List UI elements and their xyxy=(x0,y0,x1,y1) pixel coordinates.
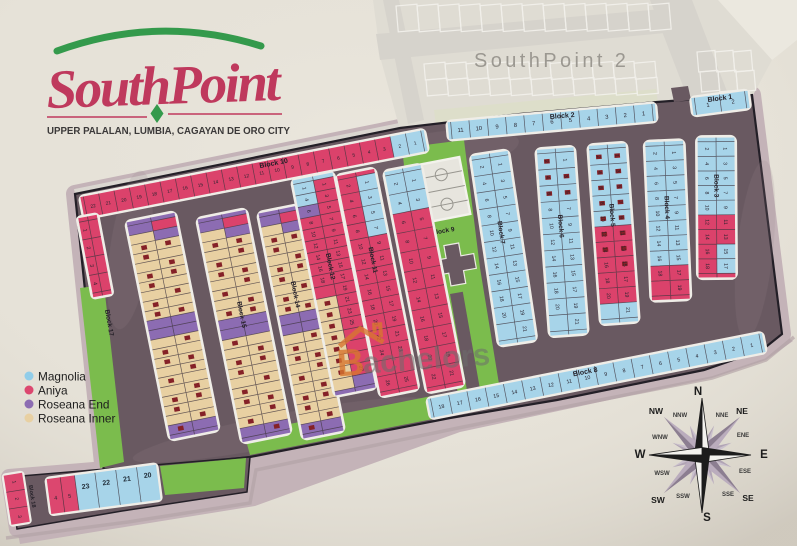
svg-text:17: 17 xyxy=(456,400,463,407)
svg-text:W: W xyxy=(635,449,646,461)
svg-text:2: 2 xyxy=(651,152,657,155)
svg-text:WNW: WNW xyxy=(652,435,668,441)
svg-text:SW: SW xyxy=(651,495,666,505)
svg-text:17: 17 xyxy=(622,276,628,282)
svg-text:4: 4 xyxy=(703,162,709,165)
svg-text:NE: NE xyxy=(736,406,748,416)
svg-text:SouthPoint 2: SouthPoint 2 xyxy=(474,50,629,72)
svg-text:16: 16 xyxy=(418,316,425,323)
svg-text:S: S xyxy=(703,512,711,524)
svg-text:12: 12 xyxy=(655,225,661,231)
svg-text:14: 14 xyxy=(550,255,556,261)
svg-text:13: 13 xyxy=(722,234,728,240)
svg-text:5: 5 xyxy=(671,181,677,184)
svg-text:15: 15 xyxy=(570,270,576,276)
svg-text:5: 5 xyxy=(615,185,621,188)
svg-text:6: 6 xyxy=(653,182,659,185)
svg-text:7: 7 xyxy=(722,191,728,194)
svg-text:10: 10 xyxy=(407,258,414,265)
svg-text:1: 1 xyxy=(721,147,727,150)
svg-text:Magnolia: Magnolia xyxy=(38,370,86,384)
svg-text:10: 10 xyxy=(599,216,605,222)
svg-text:3: 3 xyxy=(563,175,569,178)
svg-text:18: 18 xyxy=(552,288,558,294)
svg-text:8: 8 xyxy=(653,197,659,200)
svg-text:2: 2 xyxy=(595,155,601,158)
svg-text:10: 10 xyxy=(488,230,495,237)
svg-text:2: 2 xyxy=(543,160,549,163)
svg-text:NW: NW xyxy=(649,406,664,416)
svg-text:13: 13 xyxy=(620,245,626,251)
svg-text:E: E xyxy=(760,449,768,461)
svg-text:NNW: NNW xyxy=(673,413,688,419)
svg-text:12: 12 xyxy=(600,231,606,237)
svg-text:12: 12 xyxy=(549,239,555,245)
svg-text:15: 15 xyxy=(722,248,728,254)
svg-text:13: 13 xyxy=(568,254,574,260)
svg-text:17: 17 xyxy=(571,286,577,292)
svg-text:8: 8 xyxy=(547,208,553,211)
svg-text:18: 18 xyxy=(604,277,610,283)
svg-text:WSW: WSW xyxy=(654,471,670,477)
svg-text:11: 11 xyxy=(722,219,728,225)
svg-text:21: 21 xyxy=(573,319,579,325)
svg-text:16: 16 xyxy=(475,396,482,403)
svg-text:1: 1 xyxy=(613,154,619,157)
svg-text:9: 9 xyxy=(673,211,679,214)
svg-text:Aniya: Aniya xyxy=(38,384,68,398)
svg-text:11: 11 xyxy=(567,238,573,244)
svg-text:3: 3 xyxy=(614,169,620,172)
svg-text:1: 1 xyxy=(561,158,567,161)
svg-text:9: 9 xyxy=(618,216,624,219)
svg-text:ESE: ESE xyxy=(739,469,751,475)
svg-text:16: 16 xyxy=(603,262,609,268)
svg-text:20: 20 xyxy=(605,293,611,299)
svg-text:2: 2 xyxy=(703,148,709,151)
svg-text:Roseana Inner: Roseana Inner xyxy=(38,412,115,426)
svg-text:12: 12 xyxy=(704,219,710,225)
svg-text:10: 10 xyxy=(703,205,709,211)
svg-text:17: 17 xyxy=(675,270,681,276)
svg-text:7: 7 xyxy=(532,121,536,127)
svg-text:10: 10 xyxy=(548,223,554,229)
svg-text:11: 11 xyxy=(673,225,679,231)
svg-text:20: 20 xyxy=(500,312,507,319)
svg-text:6: 6 xyxy=(703,177,709,180)
svg-text:6: 6 xyxy=(597,186,603,189)
svg-text:15: 15 xyxy=(513,276,520,283)
svg-text:4: 4 xyxy=(596,171,602,174)
svg-text:14: 14 xyxy=(414,296,421,303)
svg-text:Roseana End: Roseana End xyxy=(38,398,110,412)
svg-text:9: 9 xyxy=(495,124,499,130)
svg-text:17: 17 xyxy=(516,293,523,300)
svg-text:5: 5 xyxy=(564,191,570,194)
svg-text:10: 10 xyxy=(475,126,482,133)
svg-text:SE: SE xyxy=(742,493,754,503)
svg-text:3: 3 xyxy=(722,162,728,165)
svg-text:19: 19 xyxy=(518,309,525,316)
svg-text:4: 4 xyxy=(544,176,550,179)
svg-text:6: 6 xyxy=(545,192,551,195)
svg-text:15: 15 xyxy=(675,255,681,261)
svg-text:18: 18 xyxy=(498,296,505,303)
svg-text:1: 1 xyxy=(642,111,646,117)
svg-text:19: 19 xyxy=(676,285,682,291)
svg-text:5: 5 xyxy=(722,177,728,180)
svg-text:8: 8 xyxy=(703,192,709,195)
svg-text:ENE: ENE xyxy=(737,433,749,439)
svg-text:18: 18 xyxy=(438,404,445,411)
svg-text:21: 21 xyxy=(123,476,132,484)
svg-text:8: 8 xyxy=(598,202,604,205)
svg-text:19: 19 xyxy=(623,292,629,298)
svg-text:14: 14 xyxy=(493,263,500,270)
svg-text:SSW: SSW xyxy=(676,494,690,500)
svg-text:7: 7 xyxy=(565,207,571,210)
svg-text:21: 21 xyxy=(521,326,528,333)
svg-text:7: 7 xyxy=(672,196,678,199)
svg-text:Block 3: Block 3 xyxy=(712,174,719,198)
svg-text:Block 4: Block 4 xyxy=(662,196,670,220)
svg-text:N: N xyxy=(694,386,702,398)
svg-text:14: 14 xyxy=(511,389,518,396)
svg-text:16: 16 xyxy=(704,249,710,255)
svg-text:15: 15 xyxy=(493,393,500,400)
svg-text:4: 4 xyxy=(652,167,658,170)
svg-text:13: 13 xyxy=(511,260,518,267)
svg-text:8: 8 xyxy=(514,123,518,129)
svg-text:3: 3 xyxy=(605,115,609,121)
svg-text:16: 16 xyxy=(495,279,502,286)
svg-text:18: 18 xyxy=(656,270,662,276)
svg-text:15: 15 xyxy=(621,261,627,267)
svg-text:21: 21 xyxy=(624,307,630,313)
svg-text:NNE: NNE xyxy=(716,413,729,419)
svg-text:18: 18 xyxy=(704,263,710,269)
svg-text:19: 19 xyxy=(572,302,578,308)
svg-text:20: 20 xyxy=(143,472,152,480)
svg-text:12: 12 xyxy=(548,382,555,389)
svg-text:11: 11 xyxy=(508,244,515,250)
svg-text:23: 23 xyxy=(81,483,90,491)
svg-text:13: 13 xyxy=(674,240,680,246)
svg-text:11: 11 xyxy=(619,230,625,236)
svg-text:SouthPoint: SouthPoint xyxy=(45,51,283,120)
svg-text:16: 16 xyxy=(551,271,557,277)
svg-text:7: 7 xyxy=(617,200,623,203)
svg-text:12: 12 xyxy=(490,246,497,253)
svg-text:9: 9 xyxy=(566,223,572,226)
svg-text:20: 20 xyxy=(554,304,560,310)
svg-text:11: 11 xyxy=(457,128,464,135)
svg-text:13: 13 xyxy=(529,386,536,393)
svg-text:16: 16 xyxy=(656,255,662,261)
svg-text:14: 14 xyxy=(704,234,710,240)
svg-text:1: 1 xyxy=(670,151,676,154)
svg-text:14: 14 xyxy=(655,240,661,246)
svg-text:2: 2 xyxy=(623,113,627,119)
svg-text:17: 17 xyxy=(722,263,728,269)
svg-text:UPPER PALALAN, LUMBIA, CAGAYAN: UPPER PALALAN, LUMBIA, CAGAYAN DE ORO CI… xyxy=(47,126,290,137)
svg-text:10: 10 xyxy=(654,210,660,216)
svg-text:3: 3 xyxy=(671,166,677,169)
svg-text:12: 12 xyxy=(411,277,418,284)
svg-text:9: 9 xyxy=(722,206,728,209)
svg-text:SSE: SSE xyxy=(722,492,734,498)
svg-text:14: 14 xyxy=(601,247,607,253)
svg-text:22: 22 xyxy=(102,479,111,487)
